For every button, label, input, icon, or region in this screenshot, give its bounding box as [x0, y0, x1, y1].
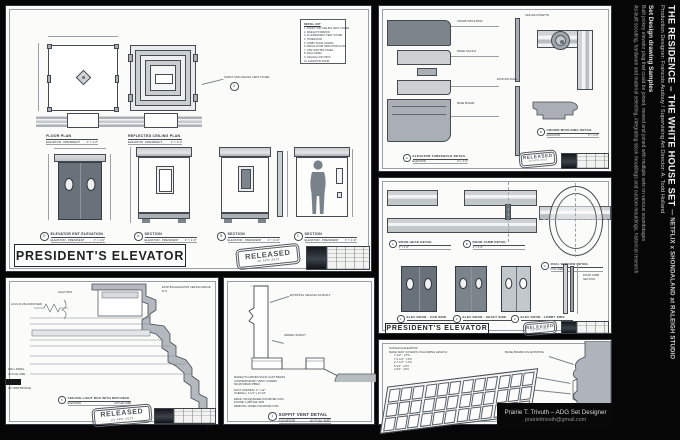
wall-section-strip [515, 18, 520, 82]
label-crown: CROWN MOULDING [457, 20, 483, 24]
label-rosette: CEILING ROSETTE [525, 14, 549, 18]
control-panel [336, 168, 343, 184]
door-caption-1: 1 ELEV DOOR - CAB SIDE [397, 315, 459, 323]
label-wall: EXISTING WALL [497, 78, 518, 82]
drawing-title-block [561, 321, 609, 334]
door-caption-2: 2 ELEV DOOR - SHAFT SIDE [453, 315, 515, 323]
rcp-caption: REFLECTED CEILING PLAN ELEVATOR - PRESID… [128, 134, 182, 145]
elevation-d-caption: D ELEVATOR ENT ELEVATION ELEVATOR - PRES… [40, 232, 105, 243]
vent-notes: FOR EACH ELEVATOR MAKE VENT COVER IN FOL… [389, 347, 448, 372]
list-item: ELEVATOR DOOR [304, 60, 343, 64]
light-box-plan [155, 74, 173, 84]
section-b-caption: B SECTION ELEVATOR - PRESIDENT1" = 1'-0" [217, 232, 280, 243]
door-jamb-section [387, 218, 537, 233]
drawing-title-block [561, 153, 609, 169]
title-block-cells [174, 409, 215, 423]
label-hvls: HVLS FLUSH DIFFUSER [11, 303, 42, 307]
white-house-thumbnail [307, 247, 327, 269]
detail-list-items: SOFFIT AND CEILING VENT COVER SIDE EXIT … [304, 27, 343, 63]
ceiling-rosette [551, 31, 570, 50]
chair-rail-block [417, 68, 437, 76]
floor-plan-caption: FLOOR PLAN ELEVATOR - PRESIDENT1" = 1'-0… [46, 134, 98, 145]
label-existing-ceiling: EXISTING CEILING AS BUILT [290, 294, 331, 298]
base-block [387, 99, 451, 142]
crown-profile-section [531, 96, 581, 122]
sheet-moulding-details: CROWN MOULDING PANEL MOULD BASE BOARD EX… [378, 5, 612, 172]
samples-line-2: As-built scouting, hardware and material… [632, 5, 638, 425]
oval-window-detail [539, 186, 611, 258]
section-b-drawing [215, 147, 287, 225]
label-wall-panel: WALL PANEL [8, 368, 24, 372]
label-actual-size: ACTUAL SIZE [8, 373, 25, 377]
white-house-thumbnail [155, 409, 174, 423]
drawing-title-block [306, 246, 370, 270]
detail-list-title: DETAIL LIST [304, 22, 343, 26]
white-house-thumbnail [562, 322, 577, 333]
released-stamp: RELEASED 20-APR-2023 [525, 322, 556, 335]
label-baseboard: BASE BOARD AS EXISTING [505, 351, 544, 355]
detail-bubble: 2 [230, 82, 239, 91]
sheet-soffit-detail: EXISTING CEILING AS BUILT ADDED SOFFIT M… [223, 277, 375, 425]
label-panel: PANEL MOULD [457, 50, 476, 54]
sheet-door-details: A DOOR HEAD DETAIL 3" = 1'-0" B DOOR JAM… [378, 177, 612, 334]
ceiling-corner-detail: CEILING ROSETTE [537, 22, 609, 88]
drawing-title-block [154, 408, 216, 424]
released-stamp: RELEASED 20-APR-2023 [521, 152, 556, 167]
sheet-title-box: PRESIDENT'S ELEVATOR [14, 244, 186, 267]
title-block-cells [327, 247, 369, 269]
sheet-crown-detail: HVLS FLUSH DIFFUSER LIGHT BOX EXISTING E… [5, 277, 219, 425]
designer-name: Prairie T. Trivuth – ADG Set Designer [504, 409, 606, 416]
released-stamp: RELEASED 20-APR-2023 [237, 245, 298, 268]
label-lightbox: LIGHT BOX [58, 291, 72, 295]
designer-email: prairiettrivuth@gmail.com [525, 417, 586, 423]
title-block-cells [577, 154, 608, 168]
door-head-caption: A DOOR HEAD DETAIL 3" = 1'-0" [389, 240, 451, 250]
section-a-caption: A SECTION ELEVATOR - PRESIDENT1" = 1'-0" [134, 232, 197, 243]
elevator-doors [58, 162, 102, 220]
project-subtitle: — NETFLIX x SHONDALAND at RALEIGH STUDIO [669, 209, 675, 359]
door-jamb-vertical-section [563, 264, 579, 314]
door-elevation-shaft [455, 266, 487, 312]
panel-mould-block [397, 80, 451, 95]
door-section-caption-wrap: DOOR JAMB SECTION [583, 274, 611, 282]
label-existing-ceiling: EXISTING ELEVATOR CEILING ABOVE R.O. [162, 286, 214, 293]
jamb-strip [277, 151, 283, 217]
samples-heading: Set Design drawing Samples [647, 5, 654, 425]
crown-profile-block [387, 20, 451, 46]
project-title: THE RESIDENCE – THE WHITE HOUSE SET — NE… [667, 5, 677, 425]
crown-caption: B CROWN MOULDING DETAIL ELEVATOR3" = 1'-… [537, 128, 599, 138]
door-jamb-caption: B DOOR JAMB DETAIL 3" = 1'-0" [463, 240, 525, 250]
floor-plan-drawing [44, 41, 128, 131]
portfolio-sheet: { "colors":{"bg":"#060606","sheet":"#fbf… [0, 0, 680, 440]
detail-list: DETAIL LIST SOFFIT AND CEILING VENT COVE… [300, 19, 346, 64]
door-elevation-lobby [501, 266, 531, 312]
black-tag [6, 379, 21, 385]
vendor-note: MADELYN CARTER SOLID CAST BRASS CONTEMPO… [234, 376, 285, 408]
designer-credit-line: Production Designer: Francois Audouy / S… [659, 5, 665, 425]
label-added-soffit: ADDED SOFFIT [284, 334, 306, 338]
section-c-caption: C SECTION ELEVATOR - PRESIDENT1" = 1'-0" [294, 232, 357, 243]
human-figure [303, 160, 333, 216]
soffit-caption: 1 SOFFIT VENT DETAIL ELEVATORACTUAL SIZE [268, 412, 331, 424]
sheet-title-box: PRESIDENT'S ELEVATOR [385, 323, 489, 334]
door-elevation-cab [401, 266, 437, 312]
sidebar: THE RESIDENCE – THE WHITE HOUSE SET — NE… [612, 0, 680, 440]
label-trim: AS TRIM PROFILE [8, 387, 31, 391]
sheet-elevator-plans: DETAIL LIST SOFFIT AND CEILING VENT COVE… [5, 5, 372, 272]
crown-sheet-caption: 5 CEILING LIGHT BOX WITH DIFFUSER ELEVAT… [58, 396, 131, 406]
sidebar-text: THE RESIDENCE – THE WHITE HOUSE SET — NE… [631, 5, 678, 425]
wall-section-strip [515, 86, 520, 156]
panel-mould-block [397, 50, 451, 65]
section-a-drawing [132, 147, 196, 225]
vent-note: SOFFIT AND CEILING VENT COVER [224, 76, 269, 80]
label-base: BASE BOARD [457, 102, 474, 106]
section-c-drawing [292, 147, 354, 225]
rcp-drawing [126, 41, 210, 131]
elevation-d-drawing [48, 152, 114, 224]
title-block-cells [577, 322, 608, 333]
designer-credit: Prairie T. Trivuth – ADG Set Designer pr… [497, 403, 614, 429]
white-house-thumbnail [562, 154, 577, 168]
samples-line-1: Built jockey elevator plug that could be… [640, 5, 646, 425]
threshold-caption: A ELEVATOR THRESHOLD DETAIL ELEVATOR3" =… [403, 154, 468, 164]
